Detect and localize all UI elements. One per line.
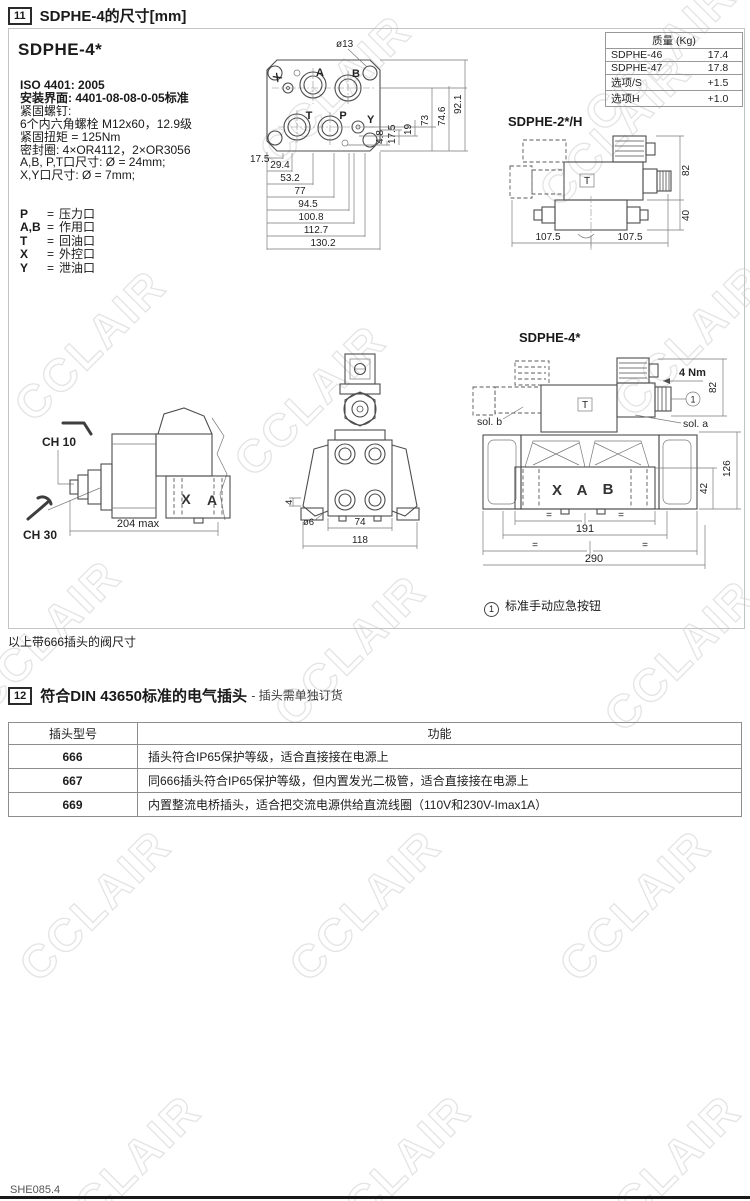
dim-label: 74 [354,517,366,528]
dim-label: 53.2 [280,173,300,184]
sdphe4-label: SDPHE-4* [519,330,580,345]
table-row: 667同666插头符合IP65保护等级，但内置发光二极管，适合直接接在电源上 [9,769,742,793]
wrench-size-label: CH 30 [23,528,57,542]
legend-row: T=回油口 [20,235,95,248]
port-label: X [271,71,285,85]
symbol-label: T [584,176,590,187]
table-header-row: 插头型号 功能 [9,723,742,745]
port-label: T [306,110,313,122]
dim-label: 94.5 [298,199,318,210]
port-label: A [207,492,217,508]
port-label: B [352,68,360,80]
section12-subtitle: - 插头需单独订货 [251,689,342,703]
port-label: A [577,482,588,499]
circled-number-icon: 1 [484,602,499,617]
solenoid-label: sol. b [477,416,502,428]
legend-row: A,B=作用口 [20,221,95,234]
symbol-label: T [582,400,588,411]
dim-label: 107.5 [617,232,642,243]
dim-label: 73 [420,114,431,126]
dim-label: 4.8 [375,130,386,144]
watermark: CCLAIR [38,1083,212,1201]
dim-label: 42 [699,482,710,494]
dim-label: ø6 [303,517,314,528]
table-row: SDPHE-4717.8 [606,62,743,75]
dim-label: 82 [681,164,692,176]
port-legend: P=压力口 A,B=作用口 T=回油口 X=外控口 Y=泄油口 [20,208,95,275]
weight-table: 质量 (Kg) SDPHE-4617.4 SDPHE-4717.8 选项/S+1… [605,32,743,107]
section11-number: 11 [8,7,32,25]
section11-title: SDPHE-4的尺寸[mm] [40,8,187,25]
watermark: CCLAIR [548,818,722,992]
dim-label: 77 [294,186,306,197]
dim-label: 112.7 [304,225,329,236]
legend-row: P=压力口 [20,208,95,221]
port-label: A [316,67,324,79]
hex-key-icon [63,423,91,434]
dim-label: 4 [284,500,295,505]
port-label: B [603,481,614,498]
plug-table: 插头型号 功能 666插头符合IP65保护等级，适合直接接在电源上 667同66… [8,722,742,817]
dim-label: = [532,540,538,551]
dim-label: 126 [722,460,733,477]
spec-block: ISO 4401: 2005 安装界面: 4401-08-08-0-05标准 紧… [20,79,192,182]
dim-label: ø13 [336,39,354,50]
wrench-icon [28,508,41,519]
dim-label: = [642,540,648,551]
dim-label: 204 max [117,518,160,530]
watermark: CCLAIR [278,818,452,992]
sdphe2-drawing: T 82 40 107.5 107.5 [500,128,744,254]
spec-line: 紧固螺钉: [20,105,192,118]
table-row: 666插头符合IP65保护等级，适合直接接在电源上 [9,745,742,769]
torque-label: 4 Nm [679,367,706,379]
section12-header: 12符合DIN 43650标准的电气插头 - 插头需单独订货 [8,685,343,706]
table-row: SDPHE-4617.4 [606,49,743,62]
spec-line: X,Y口尺寸: Ø = 7mm; [20,169,192,182]
override-callout-number: 1 [690,395,695,405]
dim-label: = [618,510,624,521]
spec-iso: ISO 4401: 2005 [20,79,192,92]
dim-label: 290 [585,553,603,565]
dim-label: 92.1 [453,94,464,114]
table-row: 选项H+1.0 [606,91,743,107]
port-label: Y [367,114,375,126]
spec-line: 6个内六角螺栓 M12x60，12.9级 [20,118,192,131]
legend-row: X=外控口 [20,248,95,261]
section11-header: 11SDPHE-4的尺寸[mm] [8,5,186,26]
dim-label: 130.2 [310,238,335,249]
spec-mount: 安装界面: 4401-08-08-0-05标准 [20,92,192,105]
dim-label: 17.5 [387,124,398,144]
page-bottom-rule [0,1196,750,1199]
plug-666-note: 以上带666插头的阀尺寸 [8,633,136,650]
section12-title: 符合DIN 43650标准的电气插头 [40,688,247,705]
datasheet-page: CCLAIR CCLAIR CCLAIR CCLAIR CCLAIR CCLAI… [0,0,750,1201]
dim-label: 29.4 [270,160,290,171]
dim-label: 82 [708,381,719,393]
table-row: 选项/S+1.5 [606,75,743,91]
sdphe4-drawing: T 4 Nm 1 sol. b sol. a X A B 82 126 42 = [465,345,745,573]
doc-code: SHE085.4 [10,1184,60,1196]
port-label: P [339,110,346,122]
dim-label: 17.5 [250,154,270,165]
dim-label: 191 [576,523,594,535]
solenoid-label: sol. a [683,418,708,430]
sdphe2-label: SDPHE-2*/H [508,114,582,129]
watermark: CCLAIR [578,1083,750,1201]
model-title: SDPHE-4* [18,40,102,60]
override-note: 1标准手动应急按钮 [484,597,601,617]
watermark: CCLAIR [308,1083,482,1201]
dim-label: 74.6 [437,106,448,126]
dim-label: 40 [681,209,692,221]
section12-number: 12 [8,687,32,705]
spec-line: 紧固扭矩 = 125Nm [20,131,192,144]
dim-label: 100.8 [298,212,323,223]
watermark: CCLAIR [8,818,182,992]
port-label: X [181,491,191,507]
mounting-face-drawing: X A B T P Y ø13 17.5 29.4 53.2 77 94.5 1… [250,34,472,260]
dim-label: 118 [352,535,368,546]
dim-label: 107.5 [535,232,560,243]
table-row: 669内置整流电桥插头，适合把交流电源供给直流线圈（110V和230V-Imax… [9,793,742,817]
dim-label: 19 [403,123,414,135]
front-view-drawing: 4 ø6 74 118 [287,348,473,560]
dim-label: = [546,510,552,521]
wrench-size-label: CH 10 [42,435,76,449]
legend-row: Y=泄油口 [20,262,95,275]
side-view-drawing: CH 10 CH 30 X A 204 max [18,388,268,548]
weight-table-header: 质量 (Kg) [606,33,743,49]
port-label: X [552,482,562,499]
